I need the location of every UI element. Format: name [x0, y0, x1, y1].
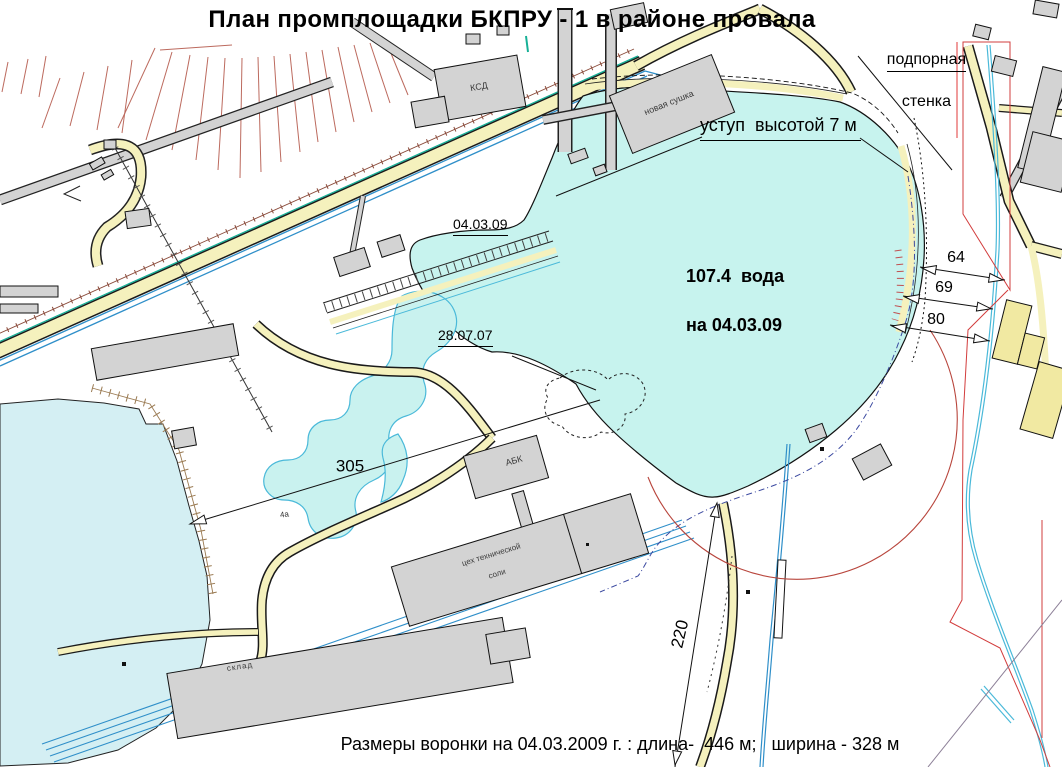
retaining-wall-line1: подпорная: [887, 50, 966, 72]
water-level-line1: 107.4 вода: [686, 266, 784, 286]
contour-2009-label: 04.03.09: [453, 216, 508, 236]
slope-hatch-icon: [2, 41, 408, 178]
buildings-yellow: [992, 300, 1062, 439]
label-salt-shop-line1: цех технической: [461, 541, 522, 567]
dim-80: 80: [927, 310, 945, 330]
retaining-wall-label: подпорная стенка: [869, 30, 966, 132]
retaining-wall-line2: стенка: [902, 93, 951, 110]
contour-2007-label: 28.07.07: [438, 327, 493, 347]
page-title: План промплощадки БКПРУ - 1 в районе про…: [208, 5, 815, 35]
dim-305: 305: [336, 455, 364, 476]
site-plan: План промплощадки БКПРУ - 1 в районе про…: [0, 0, 1062, 767]
water-level-label: 107.4 вода на 04.03.09: [666, 240, 784, 361]
area-mark-label: 4а: [279, 509, 289, 520]
water-level-line2: на 04.03.09: [686, 315, 782, 335]
dim-64: 64: [947, 248, 965, 268]
scarp-label: уступ высотой 7 м: [700, 114, 861, 141]
dim-69: 69: [935, 278, 953, 298]
label-salt-shop-line2: соли: [487, 567, 506, 581]
crater-size-caption: Размеры воронки на 04.03.2009 г. : длина…: [341, 733, 900, 756]
contour-2007-shape: [264, 291, 457, 538]
